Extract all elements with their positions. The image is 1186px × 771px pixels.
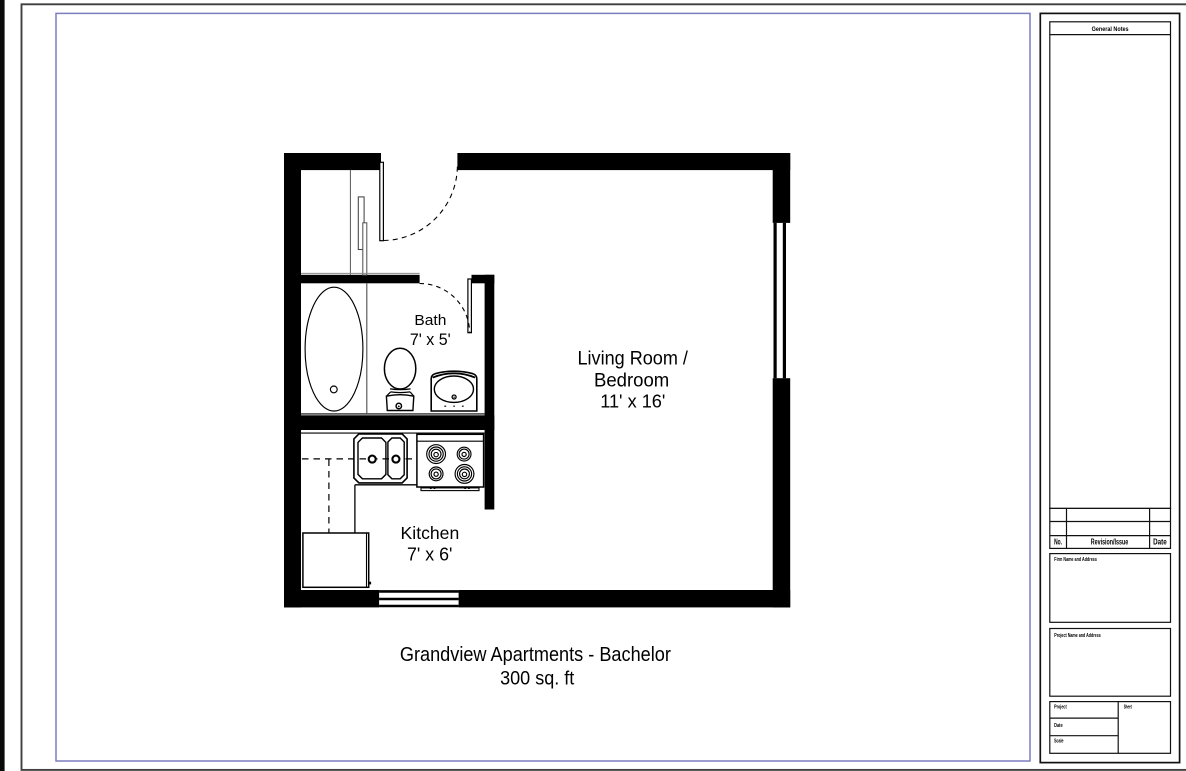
svg-text:Date: Date (1153, 537, 1167, 546)
svg-text:7' x 6': 7' x 6' (407, 545, 452, 565)
svg-text:Bedroom: Bedroom (594, 371, 669, 392)
svg-text:Date: Date (1054, 723, 1063, 729)
svg-text:Project Name and Address: Project Name and Address (1054, 633, 1101, 639)
svg-text:11' x 16': 11' x 16' (600, 391, 665, 411)
svg-text:Scale: Scale (1054, 738, 1064, 744)
svg-text:7' x 5': 7' x 5' (410, 330, 451, 349)
svg-text:Sheet: Sheet (1124, 705, 1132, 711)
svg-text:General Notes: General Notes (1092, 26, 1129, 33)
svg-text:300 sq. ft: 300 sq. ft (500, 667, 575, 689)
svg-text:Revision/Issue: Revision/Issue (1091, 537, 1129, 546)
svg-text:Project: Project (1054, 704, 1067, 710)
svg-text:Bath: Bath (414, 312, 446, 329)
svg-text:Living Room /: Living Room / (578, 348, 689, 370)
svg-text:Firm Name and Address: Firm Name and Address (1054, 557, 1097, 563)
svg-text:No.: No. (1054, 537, 1062, 546)
svg-text:Grandview Apartments - Bachelo: Grandview Apartments - Bachelor (400, 644, 671, 666)
svg-text:Kitchen: Kitchen (401, 523, 460, 543)
